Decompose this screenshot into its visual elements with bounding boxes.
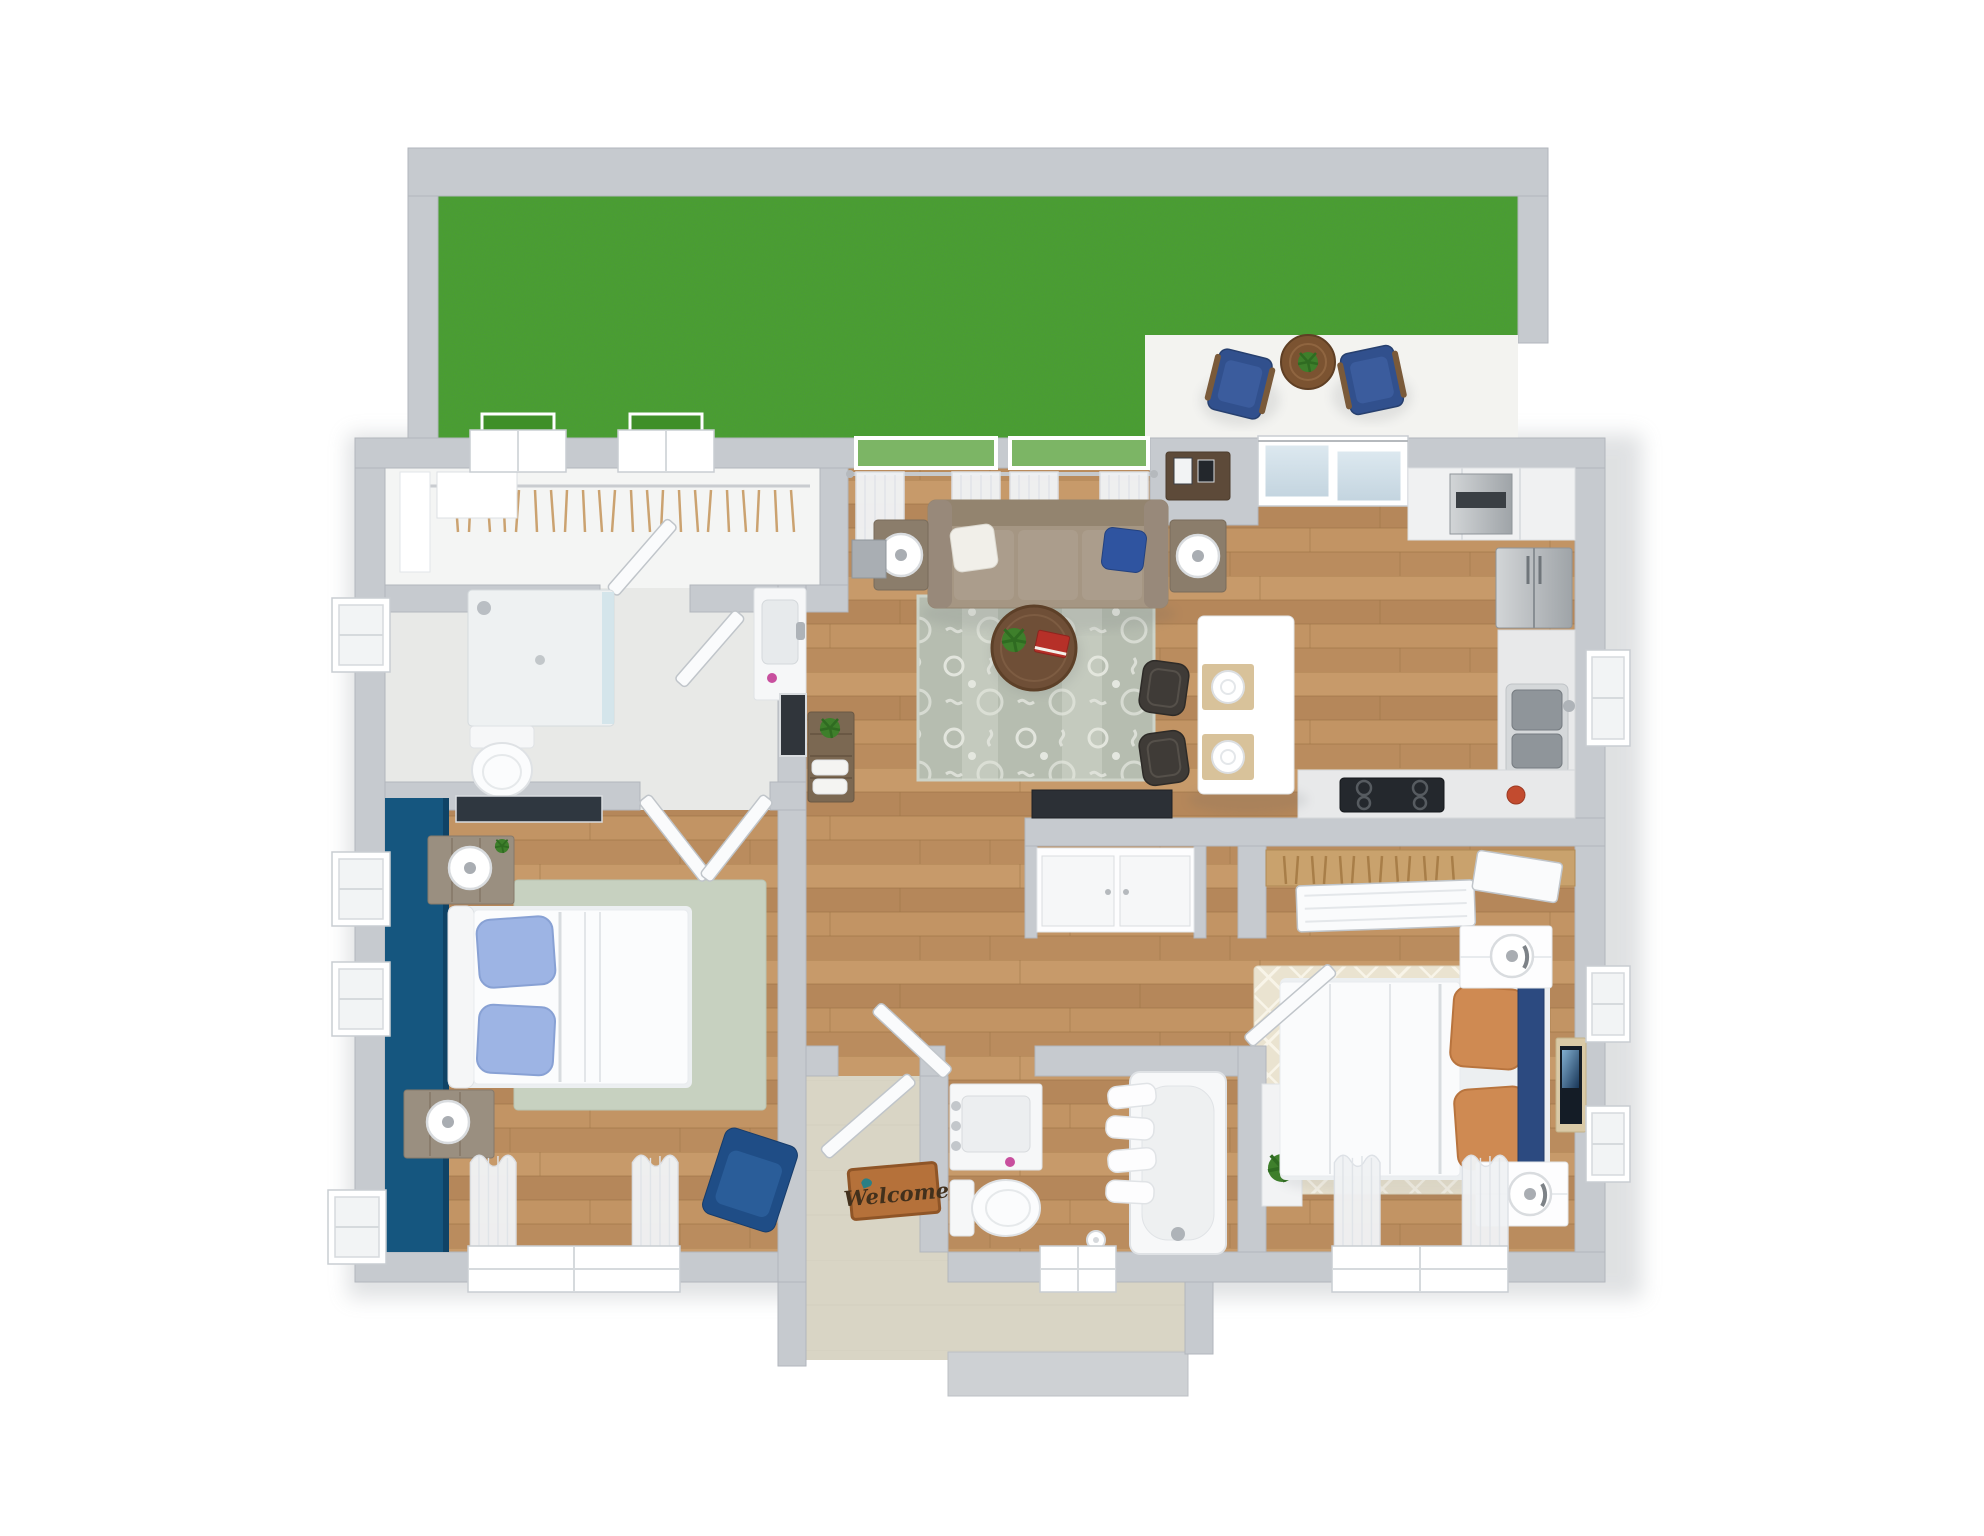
kitchen-window: [1586, 650, 1630, 746]
closet-dresser: [437, 472, 517, 518]
bath-towel: [1107, 1147, 1157, 1173]
navy-headboard: [1518, 980, 1544, 1178]
utility-nook-wall: [1194, 846, 1206, 938]
orange-pillow: [1449, 986, 1526, 1071]
bedroom2-side-window: [1586, 1106, 1630, 1182]
coffee-bar-counter: [1032, 790, 1172, 818]
bedroom1-tv: [456, 796, 602, 822]
patio: [1145, 335, 1518, 440]
bedroom1-curtain: [632, 1155, 678, 1250]
table-lamp: [1177, 535, 1219, 577]
coffee-table-plant: [1002, 628, 1026, 652]
closet-shelving: [400, 472, 430, 572]
wall-shelf: [1166, 452, 1230, 500]
headboard: [448, 906, 474, 1088]
bedroom1-right-wall: [778, 810, 806, 1282]
kitchen-bottom-wall: [1025, 818, 1605, 846]
bedroom2-curtain: [1334, 1155, 1380, 1250]
red-canister: [1507, 786, 1525, 804]
bedroom1-side-window: [332, 962, 390, 1036]
soap: [1005, 1157, 1015, 1167]
shower-glass-panel: [602, 592, 614, 724]
console-table: [808, 712, 854, 802]
guest-bath-window: [1040, 1246, 1116, 1292]
light-blue-pillow: [476, 1004, 555, 1076]
floor-plan-stage: Welcome: [0, 0, 1984, 1536]
bedroom2-tv: [1556, 1038, 1586, 1132]
tub-faucet: [1171, 1227, 1185, 1241]
shower-drain: [535, 655, 545, 665]
faucet: [796, 622, 805, 640]
guest-toilet: [950, 1180, 1040, 1236]
bath-towel: [1105, 1180, 1154, 1204]
framed-wall-art: [780, 694, 806, 756]
bedroom1-side-window: [328, 1190, 386, 1264]
nightstand-white: [1460, 926, 1552, 988]
bed-master: [448, 906, 692, 1088]
console-plant: [820, 718, 840, 738]
closet-right-wall: [820, 468, 848, 585]
kitchen-island: [1188, 616, 1308, 814]
floor-plan-render: Welcome: [0, 0, 1984, 1536]
toilet: [470, 726, 534, 797]
refrigerator: [1496, 548, 1572, 628]
porch-wall-right: [1185, 1282, 1213, 1354]
side-table: [1170, 520, 1226, 592]
plate: [1212, 671, 1244, 703]
bedroom2-side-window: [1586, 966, 1630, 1042]
bedroom1-top-wall: [770, 782, 806, 810]
bath-towel: [1107, 1083, 1157, 1110]
bedroom1-curtain: [470, 1155, 516, 1250]
cabinet-door: [1120, 856, 1190, 926]
yard-window: [1010, 438, 1148, 468]
sink-faucet: [1563, 700, 1575, 712]
guest-vanity: [950, 1084, 1042, 1170]
bath-side-window: [332, 598, 390, 672]
sliding-glass-door: [1258, 436, 1408, 506]
nightstand: [428, 836, 514, 904]
porch-wall-left: [778, 1282, 806, 1366]
shower-head: [477, 601, 491, 615]
light-blue-pillow: [476, 915, 557, 988]
yard-wall-left: [408, 196, 438, 440]
picture-frame: [1198, 460, 1214, 482]
porch-step: [948, 1352, 1188, 1396]
navy-throw-pillow: [1101, 527, 1148, 574]
yard-window: [856, 438, 996, 468]
vanity-sink: [762, 600, 798, 664]
entry-wall: [806, 1046, 838, 1076]
bar-stool: [1138, 729, 1191, 787]
patio-plant: [1298, 352, 1318, 372]
sphere-lamp: [449, 847, 491, 889]
bedroom1-side-window: [332, 852, 390, 926]
porch-walkway: [806, 1282, 1185, 1360]
cabinet-door: [1042, 856, 1114, 926]
kitchen-sink: [1506, 684, 1575, 774]
white-throw-pillow: [949, 523, 999, 573]
yard-wall-top: [408, 148, 1548, 196]
nightstand-plant: [495, 839, 509, 853]
patio-armchair: [1335, 343, 1409, 417]
patio-bistro-table: [1281, 335, 1335, 389]
bedroom2-curtain: [1462, 1155, 1508, 1250]
utility-nook-wall: [1025, 846, 1037, 938]
hall-cabinet: [852, 540, 886, 578]
picture-frame: [1174, 458, 1192, 484]
utility-nook: [1037, 848, 1194, 932]
bar-stool: [1138, 659, 1191, 717]
yard-wall-right: [1518, 196, 1548, 343]
sphere-lamp: [427, 1101, 469, 1143]
folded-towels: [813, 779, 847, 794]
nightstand: [404, 1090, 494, 1158]
plate: [1212, 741, 1244, 773]
cooktop: [1340, 778, 1444, 812]
closet2-left-wall: [1238, 846, 1266, 938]
folded-towels: [812, 760, 848, 775]
bath-towel: [1105, 1115, 1154, 1140]
soap-dish: [767, 673, 777, 683]
